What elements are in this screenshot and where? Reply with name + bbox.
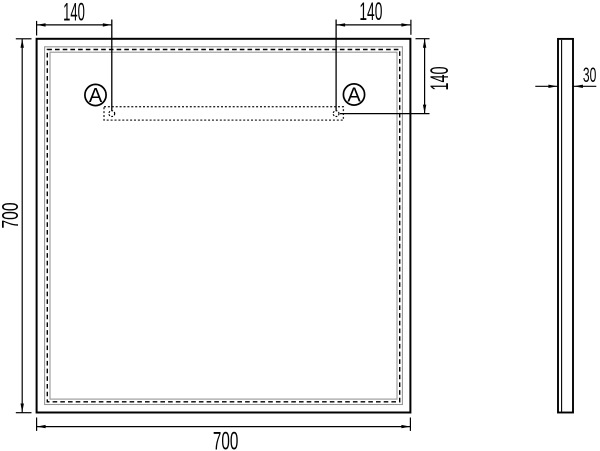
svg-text:700: 700	[0, 202, 24, 228]
svg-text:700: 700	[213, 428, 238, 451]
svg-text:140: 140	[63, 0, 85, 27]
svg-text:30: 30	[583, 64, 596, 87]
svg-text:140: 140	[359, 0, 382, 26]
svg-text:140: 140	[427, 66, 454, 90]
svg-text:A: A	[89, 85, 103, 107]
svg-text:A: A	[347, 85, 361, 107]
